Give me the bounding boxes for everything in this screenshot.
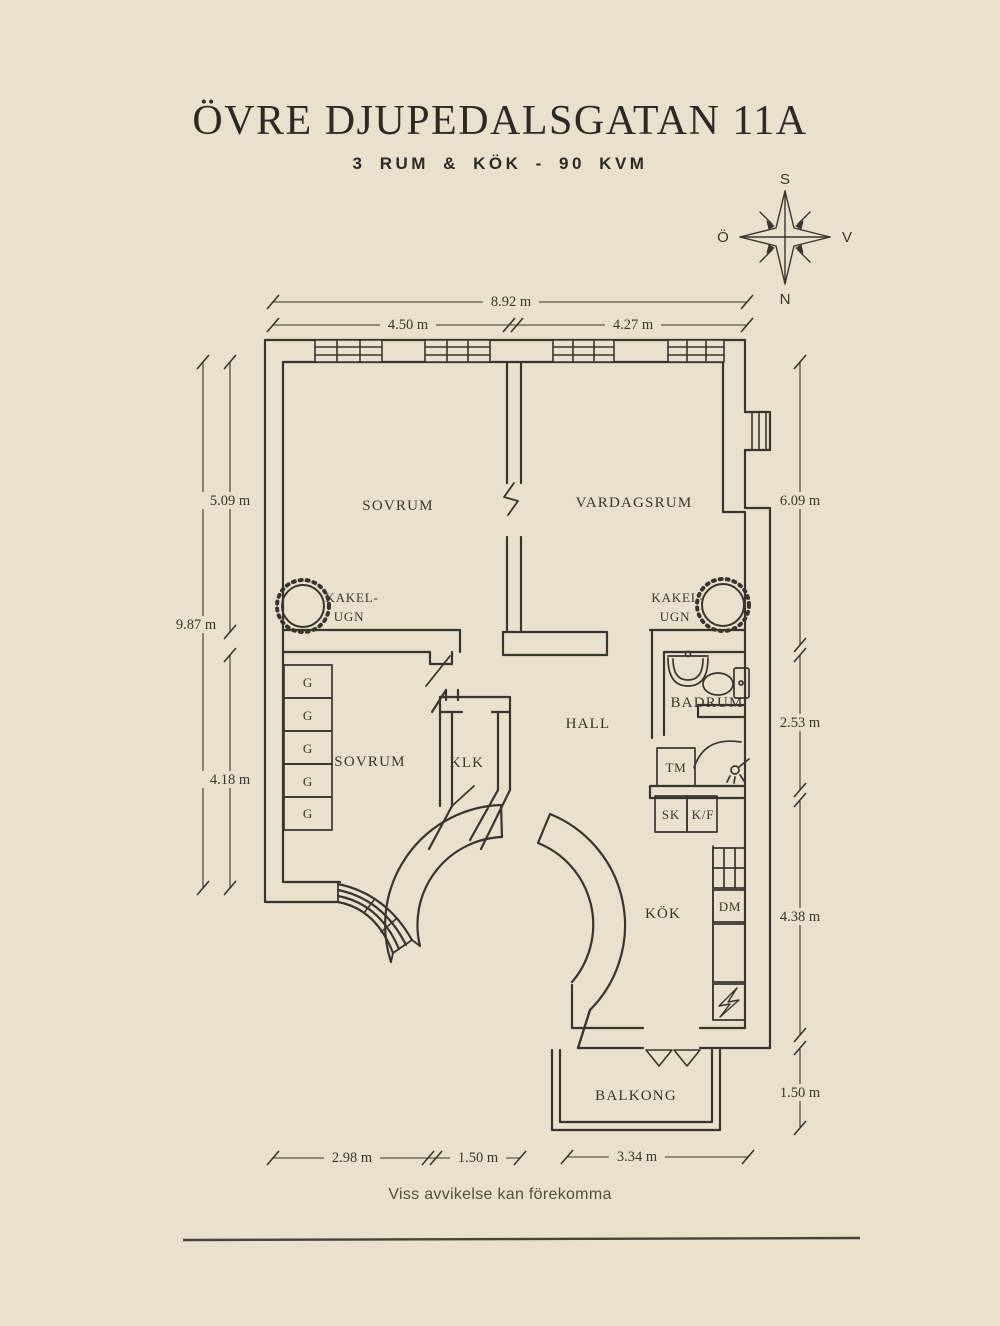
wardrobe-label-4: G xyxy=(303,774,313,789)
dishwasher-label: DM xyxy=(719,899,742,914)
sink-icon xyxy=(668,652,708,687)
wardrobe-label-5: G xyxy=(303,806,313,821)
kakelugn-right-label-2: UGN xyxy=(660,609,691,624)
dim-right-middle: 2.53 m xyxy=(780,715,821,731)
dim-bottom-left: 2.98 m xyxy=(332,1150,373,1166)
compass-east: Ö xyxy=(717,228,729,246)
room-label-badrum: BADRUM xyxy=(670,695,743,711)
stove-icon xyxy=(713,848,745,888)
dim-left-upper: 5.09 m xyxy=(210,493,251,509)
dim-top-left: 4.50 m xyxy=(388,317,429,333)
room-label-kok: KÖK xyxy=(645,905,681,922)
kakelugn-left-icon xyxy=(277,580,329,632)
washing-machine-label: TM xyxy=(665,760,686,775)
dimension-lines xyxy=(197,295,806,1165)
wardrobe-label-3: G xyxy=(303,741,313,756)
dim-right-lower: 4.38 m xyxy=(780,909,821,925)
bottom-rule xyxy=(183,1238,860,1240)
walls xyxy=(265,340,770,1130)
electric-unit-icon xyxy=(713,984,745,1020)
room-label-balkong: BALKONG xyxy=(595,1088,677,1104)
disclaimer-text: Viss avvikelse kan förekomma xyxy=(0,1186,1000,1204)
dim-balcony-width: 3.34 m xyxy=(617,1149,658,1165)
dim-total-width: 8.92 m xyxy=(491,294,532,310)
floorplan-svg: 8.92 m 4.50 m 4.27 m 9.87 m 5.09 m 4.18 … xyxy=(0,0,1000,1326)
wardrobe-label-2: G xyxy=(303,708,313,723)
toilet-icon xyxy=(703,668,749,698)
dim-left-total: 9.87 m xyxy=(176,617,217,633)
dim-left-lower: 4.18 m xyxy=(210,772,251,788)
compass-rose-icon xyxy=(740,191,830,284)
floorplan-page: ÖVRE DJUPEDALSGATAN 11A 3 RUM & KÖK - 90… xyxy=(0,0,1000,1326)
cleaning-closet-label: SK xyxy=(662,807,680,822)
room-label-klk: KLK xyxy=(450,755,484,771)
kakelugn-right-label-1: KAKEL- xyxy=(651,590,704,605)
compass-south: S xyxy=(780,171,790,188)
room-label-sovrum-1: SOVRUM xyxy=(362,498,433,514)
wardrobe-label-1: G xyxy=(303,675,313,690)
dim-bottom-middle: 1.50 m xyxy=(458,1150,499,1166)
bathroom-door-arc xyxy=(694,741,741,768)
kakelugn-left-label-1: KAKEL- xyxy=(325,590,378,605)
dim-right-upper: 6.09 m xyxy=(780,493,821,509)
room-label-sovrum-2: SOVRUM xyxy=(334,754,405,770)
fixtures xyxy=(277,579,749,1020)
dim-top-right: 4.27 m xyxy=(613,317,654,333)
room-label-hall: HALL xyxy=(566,716,611,732)
compass-west: V xyxy=(842,229,852,246)
room-label-vardagsrum: VARDAGSRUM xyxy=(576,495,693,511)
room-labels: SOVRUM VARDAGSRUM SOVRUM KLK HALL BADRUM… xyxy=(303,495,744,1104)
fridge-freezer-label: K/F xyxy=(692,807,715,822)
kakelugn-right-icon xyxy=(697,579,749,631)
kakelugn-left-label-2: UGN xyxy=(334,609,365,624)
dim-balcony-height: 1.50 m xyxy=(780,1085,821,1101)
compass-north: N xyxy=(780,291,791,308)
